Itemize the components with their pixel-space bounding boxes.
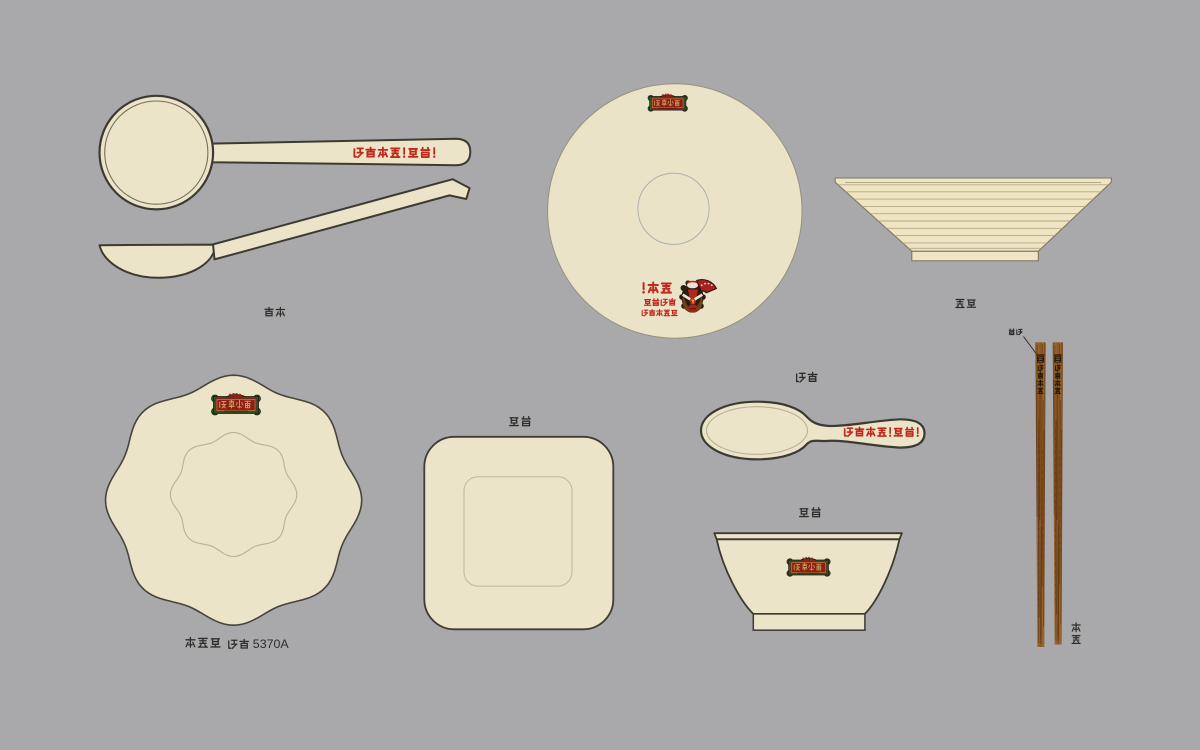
svg-text:5370A: 5370A (253, 637, 290, 651)
